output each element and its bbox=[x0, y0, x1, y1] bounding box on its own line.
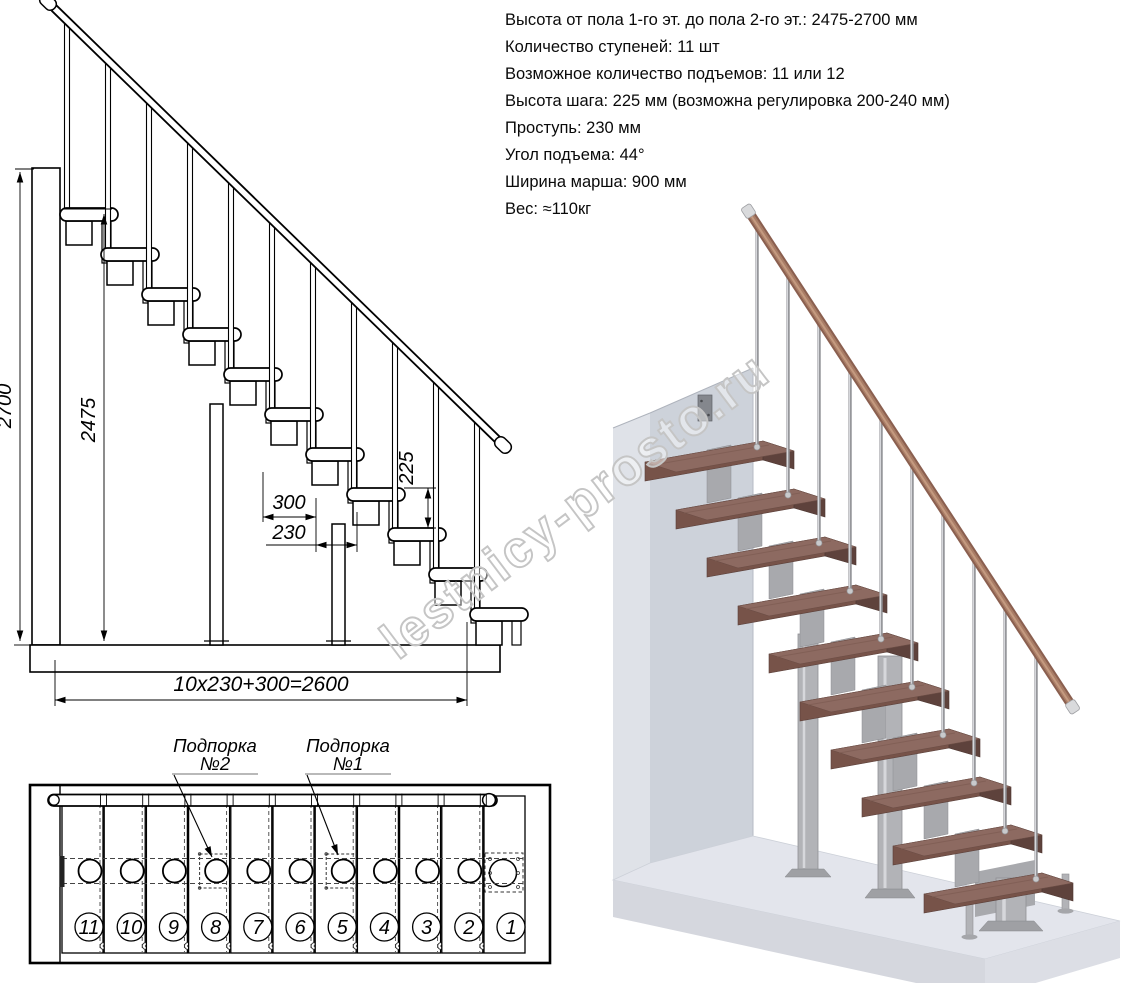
baluster-foot-ball bbox=[878, 636, 884, 642]
step-number-label: 7 bbox=[252, 917, 264, 939]
plan-step: 5 bbox=[315, 796, 361, 953]
spec-line-rises: Возможное количество подъемов: 11 или 12 bbox=[505, 61, 1135, 88]
dim-tread-depth: 230 bbox=[271, 522, 305, 544]
plan-step: 11 bbox=[62, 796, 107, 953]
spec-line-height-range: Высота от пола 1-го эт. до пола 2-го эт.… bbox=[505, 7, 1135, 34]
plan-steps: 1110987654321 bbox=[62, 796, 525, 953]
plan-step: 8 bbox=[189, 796, 235, 953]
baluster-foot-ball bbox=[847, 588, 853, 594]
plan-step: 9 bbox=[146, 796, 191, 953]
support1-number: №1 bbox=[333, 753, 363, 774]
step-number-label: 10 bbox=[120, 917, 142, 939]
spec-line-tread: Проступь: 230 мм bbox=[505, 115, 1135, 142]
plan-step: 10 bbox=[104, 796, 149, 953]
step-number-label: 11 bbox=[79, 917, 100, 939]
dim-tread-height: 2475 bbox=[78, 397, 100, 443]
baluster-foot-ball bbox=[785, 492, 791, 498]
dim-total-run: 10x230+300=2600 bbox=[173, 673, 348, 696]
wall-section bbox=[32, 168, 60, 645]
plan-step: 2 bbox=[442, 796, 487, 953]
baluster-foot-ball bbox=[909, 684, 915, 690]
step-number-label: 5 bbox=[337, 917, 349, 939]
step-number-label: 1 bbox=[505, 917, 516, 939]
staircase-diagram-page: Высота от пола 1-го эт. до пола 2-го эт.… bbox=[0, 0, 1144, 983]
spec-line-width: Ширина марша: 900 мм bbox=[505, 169, 1135, 196]
spec-line-angle: Угол подъема: 44° bbox=[505, 142, 1135, 169]
spec-line-rise-height: Высота шага: 225 мм (возможна регулировк… bbox=[505, 88, 1135, 115]
plan-view-drawing: 1110987654321 Подпорка №2 Подпорка №1 bbox=[30, 735, 550, 963]
step-number-label: 2 bbox=[462, 917, 474, 939]
baluster-foot-ball bbox=[816, 540, 822, 546]
plan-step: 6 bbox=[273, 796, 318, 953]
plan-handrail bbox=[48, 795, 497, 807]
dim-total-height: 2700 bbox=[0, 384, 16, 430]
baluster-foot-ball bbox=[1002, 828, 1008, 834]
plan-step: 1 bbox=[484, 796, 525, 953]
plan-step: 7 bbox=[231, 796, 276, 953]
step-number-label: 8 bbox=[210, 917, 221, 939]
plan-step: 3 bbox=[400, 796, 445, 953]
spec-text-block: Высота от пола 1-го эт. до пола 2-го эт.… bbox=[505, 7, 1135, 223]
baluster-foot-ball bbox=[754, 444, 760, 450]
plan-step: 4 bbox=[357, 796, 402, 953]
step-number-label: 6 bbox=[294, 917, 306, 939]
dim-riser: 225 bbox=[396, 450, 418, 485]
render-3d bbox=[613, 203, 1120, 983]
step-number-label: 9 bbox=[168, 917, 179, 939]
baluster-foot-ball bbox=[971, 780, 977, 786]
step-number-label: 4 bbox=[379, 917, 390, 939]
spec-line-weight: Вес: ≈110кг bbox=[505, 196, 1135, 223]
baluster-foot-ball bbox=[1033, 876, 1039, 882]
floor-3d bbox=[613, 836, 1120, 983]
step-number-label: 3 bbox=[421, 917, 432, 939]
spec-line-step-count: Количество ступеней: 11 шт bbox=[505, 34, 1135, 61]
dim-top-run: 300 bbox=[272, 492, 305, 514]
support2-number: №2 bbox=[200, 753, 231, 774]
baluster-foot-ball bbox=[940, 732, 946, 738]
elevation-steps bbox=[60, 19, 528, 645]
